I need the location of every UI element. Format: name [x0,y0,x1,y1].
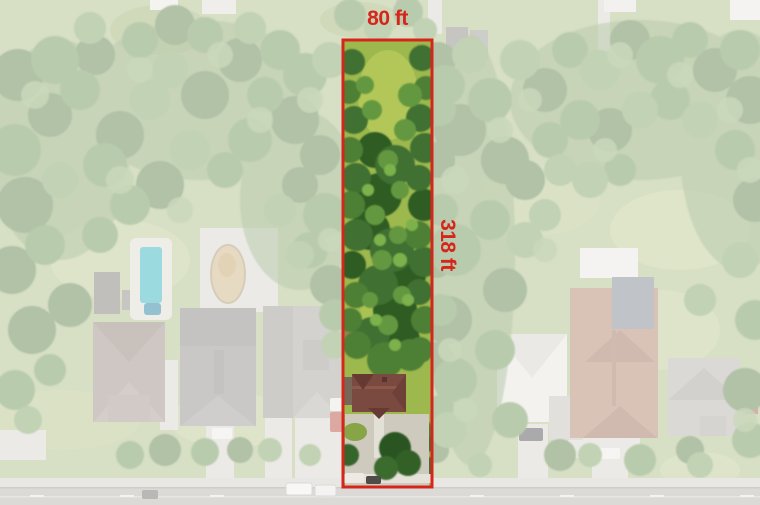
lot-car-dark [366,476,381,484]
lot-interior [337,40,440,487]
lot-width-label: 80 ft [343,8,432,29]
lot-depth-label: 318 ft [436,213,458,277]
aerial-photo [0,0,760,505]
lot-car-white [345,473,364,483]
aerial-lot-view: 80 ft 318 ft [0,0,760,505]
